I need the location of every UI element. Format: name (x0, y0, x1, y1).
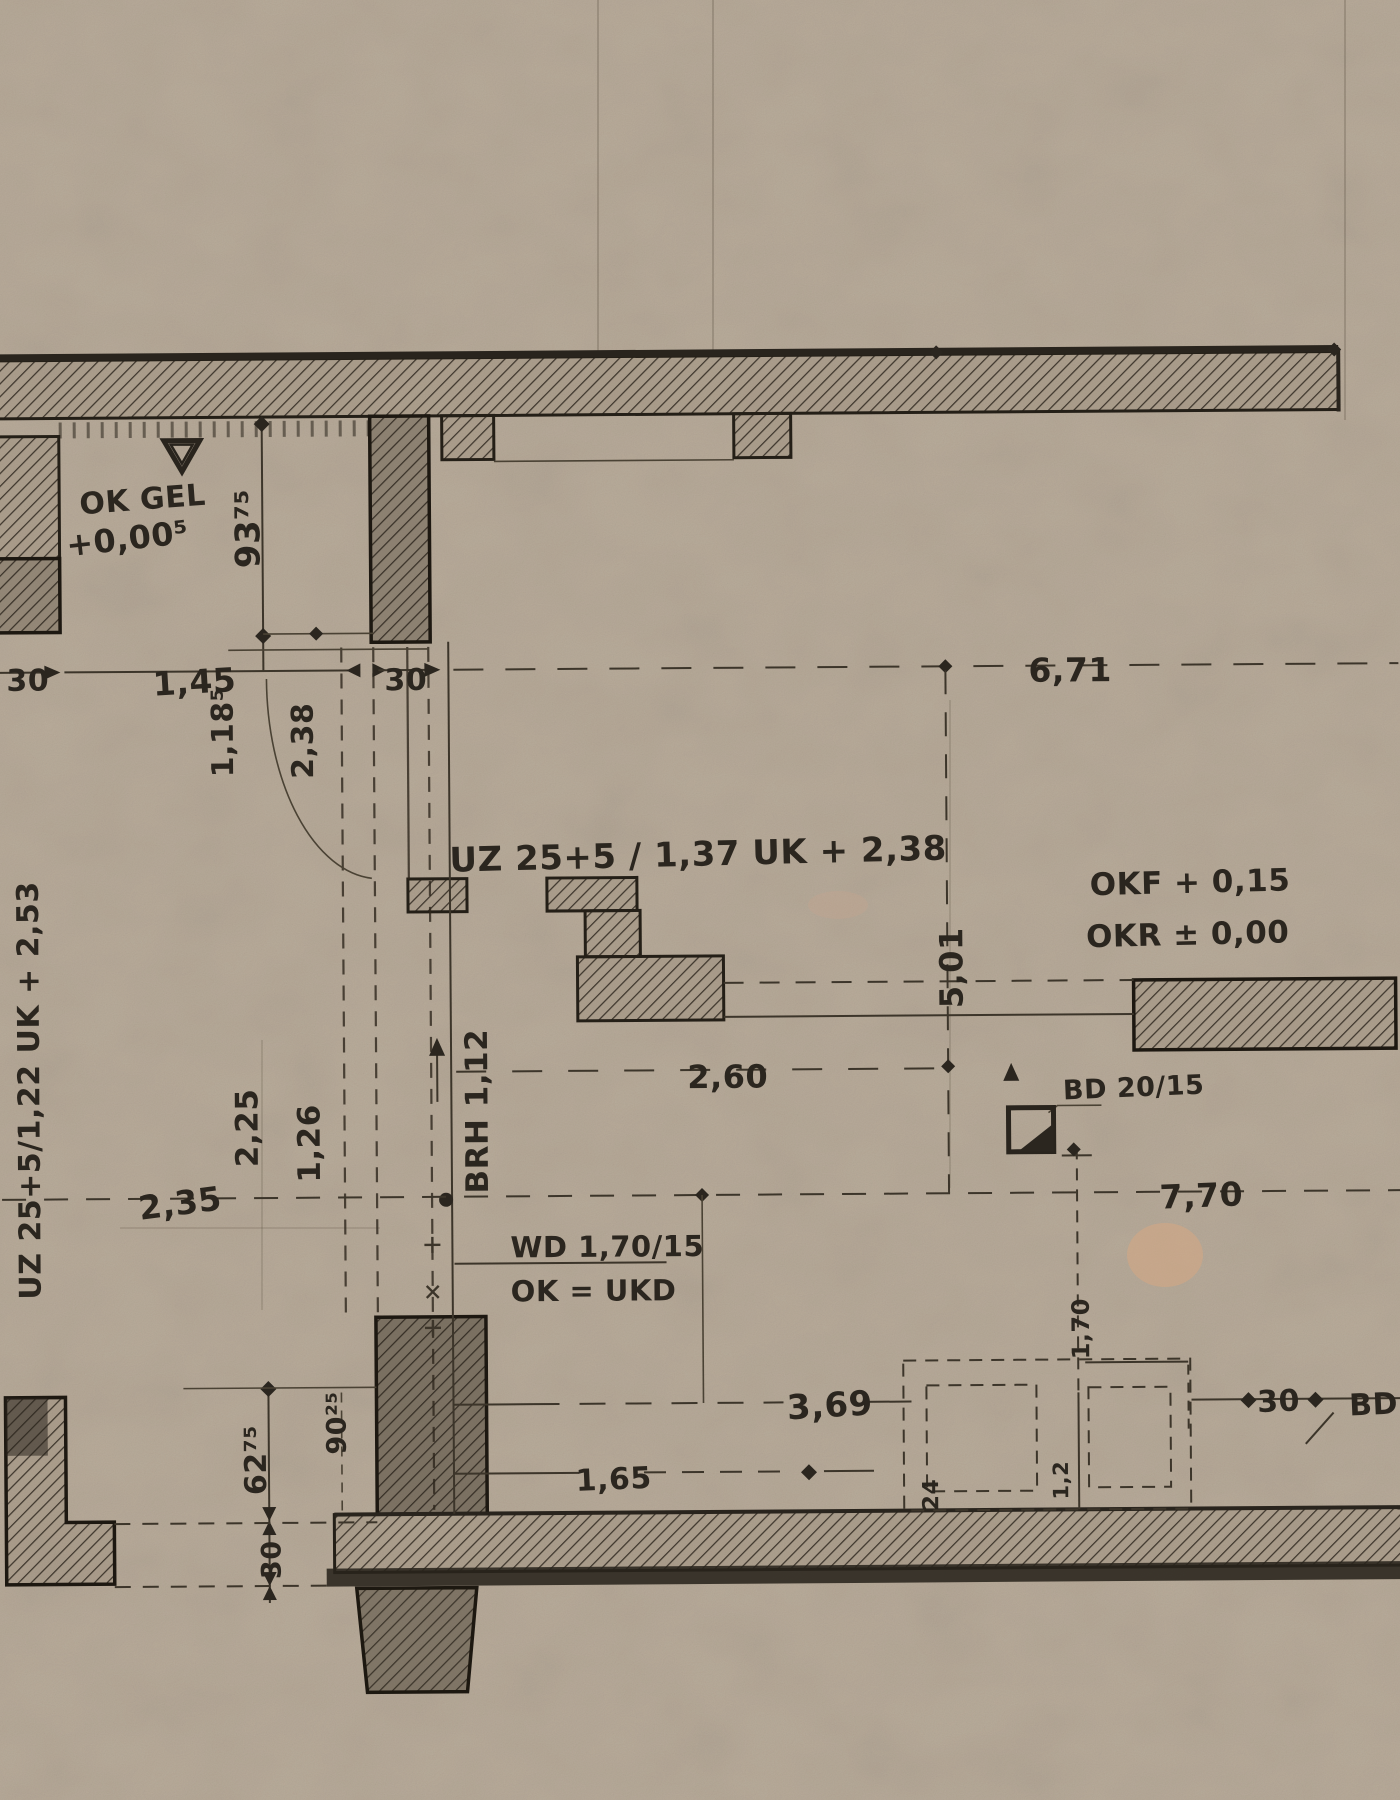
dim-7-70: 7,70 (1159, 1174, 1244, 1216)
okf-level-label: OKF + 0,15 (1089, 862, 1290, 903)
dim-3-69: 3,69 (786, 1383, 874, 1428)
bottom-exterior-wall (326, 1507, 1400, 1587)
scanned-floor-plan-sheet: OK GEL +0,00⁵ 93⁷⁵ 30 1,45 30 6,71 1,18⁵… (0, 0, 1400, 1800)
dim-2-38: 2,38 (286, 703, 322, 779)
bd-20-15-label: BD 20/15 (1062, 1070, 1205, 1107)
dim-30-bottom-right: 30 (1256, 1383, 1300, 1420)
wall-stub-b (734, 413, 791, 457)
center-pier (370, 416, 431, 642)
right-wall-piece (1134, 978, 1396, 1050)
uz-beam-label-left: UZ 25+5/1,22 UK + 2,53 (11, 881, 49, 1300)
paper-stain (1127, 1223, 1203, 1287)
ok-ukd-label: OK = UKD (511, 1273, 677, 1308)
left-exterior-wall (0, 436, 60, 632)
dim-2-60: 2,60 (687, 1058, 768, 1097)
bd-edge-label: BD (1348, 1386, 1398, 1423)
floor-plan-drawing: OK GEL +0,00⁵ 93⁷⁵ 30 1,45 30 6,71 1,18⁵… (0, 0, 1400, 1800)
dim-6-71: 6,71 (1028, 650, 1112, 690)
dim-30-mid: 30 (384, 663, 427, 698)
left-wall-pier (0, 558, 60, 632)
dim-1-65: 1,65 (575, 1461, 652, 1499)
okr-level-label: OKR ± 0,00 (1086, 914, 1290, 955)
dim-1-26: 1,26 (291, 1104, 328, 1183)
dim-1-2: 1,2 (1049, 1461, 1073, 1500)
wall-stub-a (442, 415, 494, 459)
dim-2-25: 2,25 (229, 1089, 266, 1168)
dim-90-25: 90²⁵ (321, 1391, 352, 1454)
paper-stain-small (808, 891, 868, 919)
dim-93-75: 93⁷⁵ (228, 489, 269, 568)
dim-24: 24 (919, 1479, 944, 1511)
wd-label: WD 1,70/15 (510, 1229, 704, 1264)
dim-1-18-5: 1,18⁵ (206, 688, 242, 778)
dim-30-bottom-left: 30 (256, 1540, 287, 1579)
dim-62-75: 62⁷⁵ (239, 1425, 274, 1495)
dim-5-01: 5,01 (932, 927, 971, 1008)
brh-label: BRH 1,12 (459, 1029, 496, 1194)
dim-1-70: 1,70 (1067, 1298, 1095, 1359)
dim-30-left: 30 (6, 664, 49, 699)
